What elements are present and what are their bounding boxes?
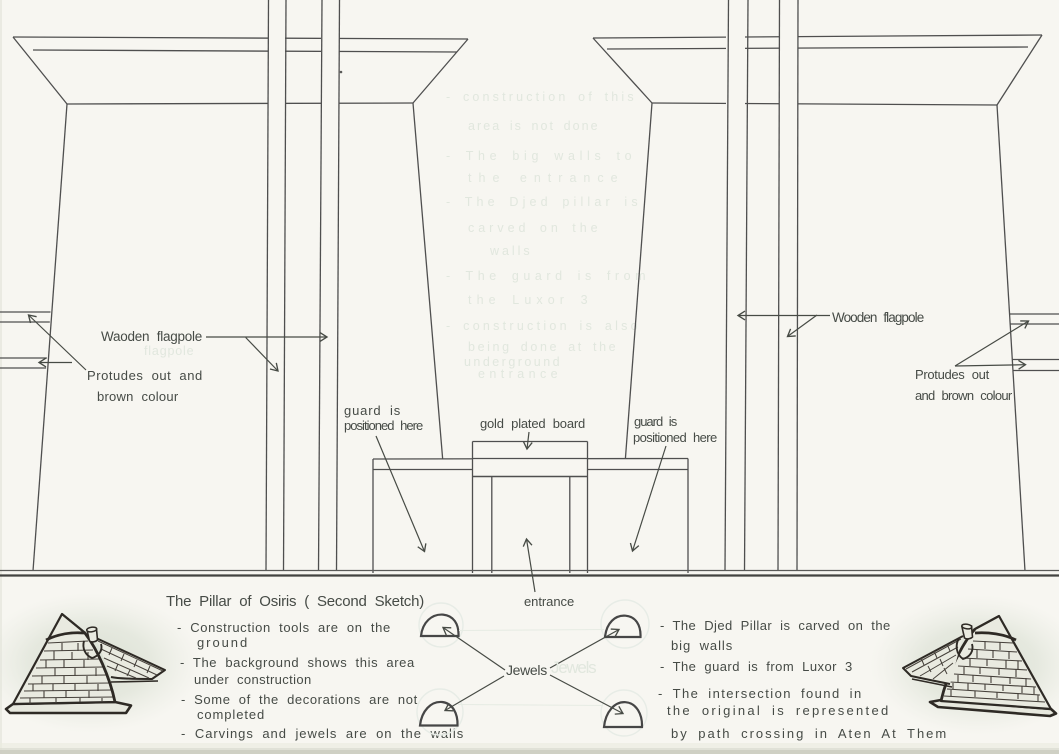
svg-text:gold plated board: gold plated board <box>480 416 586 431</box>
svg-text:- The background shows this ar: - The background shows this area <box>180 655 415 670</box>
svg-text:- The guard is from Luxor 3: - The guard is from Luxor 3 <box>660 659 853 674</box>
svg-text:guard is: guard is <box>634 414 678 429</box>
svg-text:entrance: entrance <box>478 367 558 381</box>
svg-text:under construction: under construction <box>194 672 312 687</box>
svg-text:by path crossing in Aten At Th: by path crossing in Aten At Them <box>671 726 947 741</box>
svg-text:completed: completed <box>197 707 265 722</box>
svg-text:Protudes out: Protudes out <box>915 367 990 382</box>
svg-text:- Some of the decorations are: - Some of the decorations are not <box>181 692 418 707</box>
svg-text:ground: ground <box>197 635 248 650</box>
svg-text:brown colour: brown colour <box>97 389 179 404</box>
svg-text:flagpole: flagpole <box>144 344 194 358</box>
svg-text:- Carvings and jewels are on t: - Carvings and jewels are on the walls <box>181 726 464 741</box>
svg-text:The Pillar of Osiris ( Second: The Pillar of Osiris ( Second Sketch) <box>166 593 425 610</box>
svg-text:guard is: guard is <box>344 403 401 418</box>
svg-text:Waoden flagpole: Waoden flagpole <box>101 329 203 344</box>
svg-text:- The intersection found in: - The intersection found in <box>658 686 862 701</box>
svg-text:positioned here: positioned here <box>633 430 718 445</box>
svg-text:Wooden flagpole: Wooden flagpole <box>832 310 925 325</box>
svg-text:- The Djed Pillar is carved on: - The Djed Pillar is carved on the <box>660 618 891 633</box>
svg-text:Jewels: Jewels <box>506 662 548 678</box>
svg-text:big walls: big walls <box>671 638 733 653</box>
svg-text:positioned here: positioned here <box>344 418 424 433</box>
svg-text:being done at the: being done at the <box>468 340 616 354</box>
svg-text:entrance: entrance <box>524 594 575 609</box>
svg-text:Protudes out and: Protudes out and <box>87 368 203 383</box>
svg-text:area is not done: area is not done <box>468 119 598 133</box>
svg-text:- Construction tools are on th: - Construction tools are on the <box>177 620 391 635</box>
svg-text:the original is represented: the original is represented <box>667 703 889 718</box>
svg-text:Jewels: Jewels <box>551 658 597 677</box>
svg-text:and brown colour: and brown colour <box>915 388 1013 403</box>
